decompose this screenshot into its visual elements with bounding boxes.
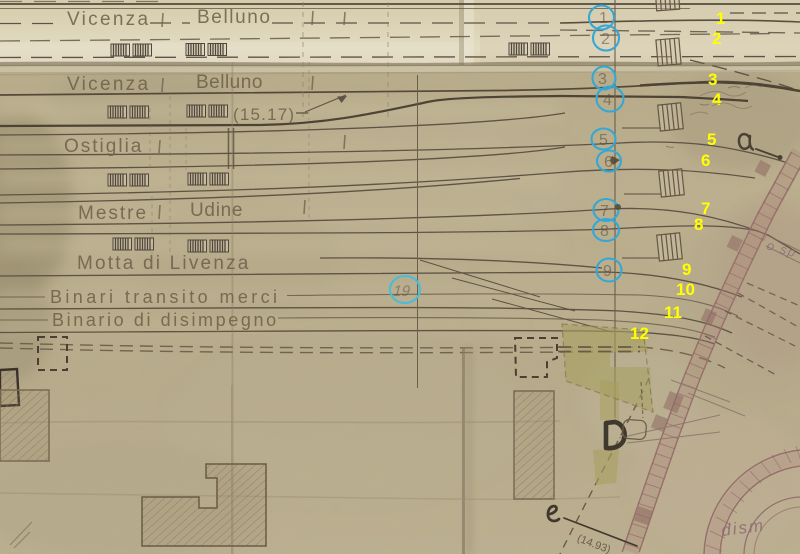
svg-text:1: 1: [599, 10, 608, 27]
svg-text:Vicenza: Vicenza: [67, 9, 150, 30]
svg-text:6: 6: [701, 151, 710, 170]
svg-text:Binario di disimpegno: Binario di disimpegno: [52, 310, 279, 330]
svg-text:7: 7: [600, 203, 609, 220]
svg-text:10: 10: [676, 280, 695, 299]
svg-text:9: 9: [603, 263, 612, 280]
svg-text:12: 12: [630, 324, 649, 343]
svg-text:Ostiglia: Ostiglia: [64, 136, 143, 157]
svg-text:(15.17): (15.17): [233, 105, 295, 124]
svg-text:Udine: Udine: [190, 200, 243, 221]
svg-text:3: 3: [598, 71, 607, 88]
svg-text:Motta di Livenza: Motta di Livenza: [77, 253, 251, 274]
svg-text:8: 8: [600, 223, 609, 240]
svg-text:2: 2: [712, 29, 721, 48]
svg-text:4: 4: [603, 92, 612, 109]
svg-text:8: 8: [694, 215, 703, 234]
svg-text:11: 11: [664, 303, 682, 322]
svg-text:5: 5: [599, 132, 608, 149]
svg-text:9: 9: [682, 260, 691, 279]
svg-text:Belluno: Belluno: [196, 72, 263, 93]
svg-text:2: 2: [601, 31, 610, 48]
svg-text:Vicenza: Vicenza: [67, 74, 150, 95]
svg-text:Binari transito merci: Binari transito merci: [50, 287, 280, 307]
svg-text:Mestre: Mestre: [78, 203, 148, 224]
svg-text:3: 3: [708, 70, 717, 89]
svg-text:4: 4: [712, 90, 722, 109]
svg-text:1: 1: [716, 9, 725, 28]
svg-text:5: 5: [707, 130, 716, 149]
svg-text:Belluno: Belluno: [197, 7, 272, 28]
